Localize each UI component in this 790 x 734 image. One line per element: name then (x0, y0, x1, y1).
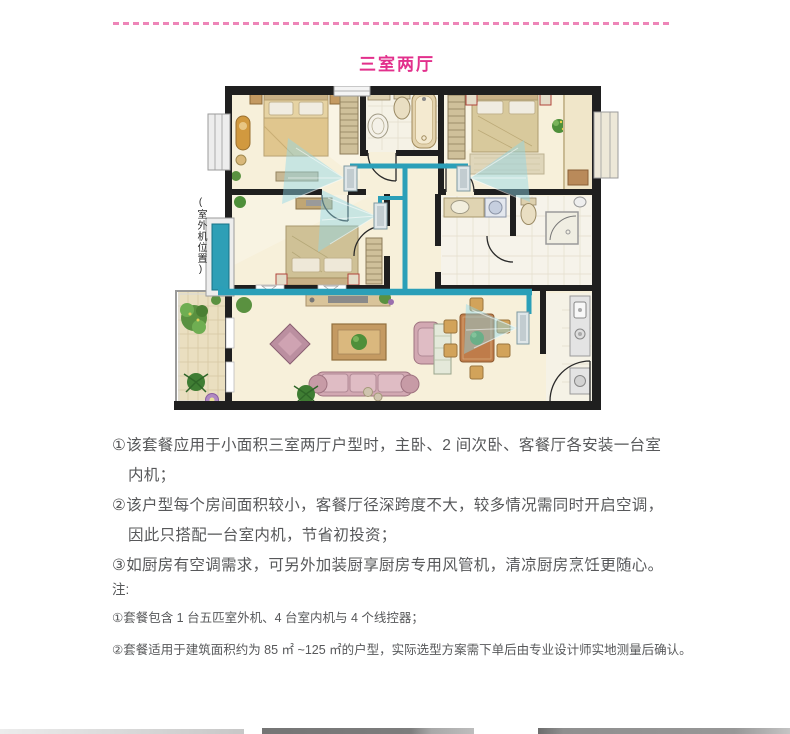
cutoff-thumbnail-left (0, 729, 244, 734)
description-paragraph-1: ①该套餐应用于小面积三室两厅户型时，主卧、2 间次卧、客餐厅各安装一台室 内机； (112, 431, 712, 491)
floor-plan (172, 86, 622, 414)
dashed-divider (113, 22, 669, 25)
balcony (176, 291, 229, 407)
note-item: ②套餐适用于建筑面积约为 85 ㎡ ~125 ㎡的户型，实际选型方案需下单后由专… (112, 634, 752, 666)
ac-unit-second-bedroom (374, 203, 387, 229)
paragraph-line: ②该户型每个房间面积较小，客餐厅径深跨度不大，较多情况需同时开启空调， (112, 491, 712, 521)
paragraph-line: ③如厨房有空调需求，可另外加装厨享厨房专用风管机，清凉厨房烹饪更随心。 (112, 551, 712, 581)
laundry-room (444, 198, 506, 217)
ac-unit-master (344, 166, 357, 191)
description-paragraph-3: ③如厨房有空调需求，可另外加装厨享厨房专用风管机，清凉厨房烹饪更随心。 (112, 551, 712, 581)
cutoff-thumbnail-right (538, 728, 790, 734)
paragraph-line: 内机； (112, 461, 712, 491)
paragraph-line: 因此只搭配一台室内机，节省初投资； (112, 521, 712, 551)
notes-label: 注: (112, 578, 752, 602)
note-item: ①套餐包含 1 台五匹室外机、4 台室内机与 4 个线控器； (112, 602, 752, 634)
outdoor-unit (206, 218, 234, 296)
description-paragraph-2: ②该户型每个房间面积较小，客餐厅径深跨度不大，较多情况需同时开启空调， 因此只搭… (112, 491, 712, 551)
kitchen (570, 296, 590, 394)
ac-unit-dining (517, 312, 529, 344)
cutoff-thumbnail-middle (262, 728, 474, 734)
ac-unit-right-bedroom (457, 166, 470, 191)
description: ①该套餐应用于小面积三室两厅户型时，主卧、2 间次卧、客餐厅各安装一台室 内机；… (112, 431, 712, 581)
notes: 注: ①套餐包含 1 台五匹室外机、4 台室内机与 4 个线控器； ②套餐适用于… (112, 578, 752, 666)
floor-plan-svg (172, 86, 622, 414)
page-title: 三室两厅 (172, 50, 622, 75)
outdoor-unit-label: (室外机位置) (194, 197, 206, 299)
paragraph-line: ①该套餐应用于小面积三室两厅户型时，主卧、2 间次卧、客餐厅各安装一台室 (112, 431, 712, 461)
product-detail-section: 三室两厅 (0, 0, 790, 734)
